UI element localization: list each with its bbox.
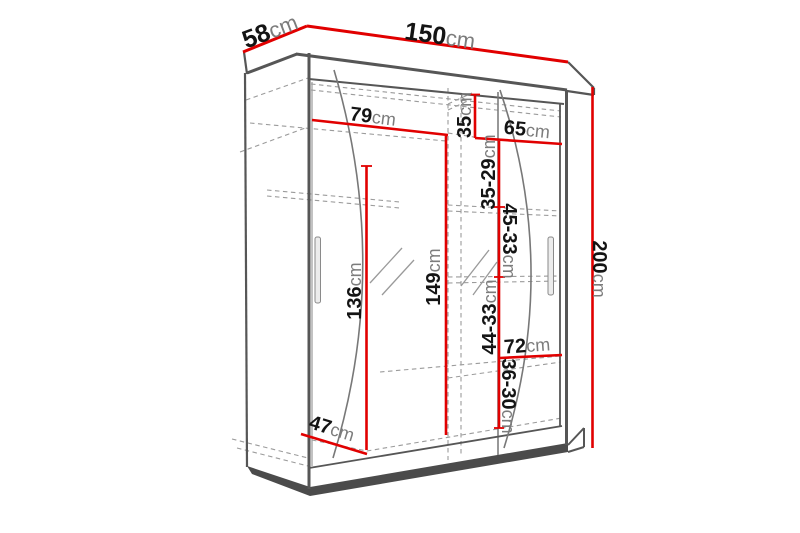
dimension-label-35: 35cm — [454, 92, 476, 138]
diagram-canvas: 58cm 150cm 200cm 79cm 65cm 35cm 35-29cm … — [0, 0, 800, 533]
dimension-label-45-33: 45-33cm — [498, 203, 520, 278]
dimension-label-44-33: 44-33cm — [479, 279, 501, 354]
dimension-label-35-29: 35-29cm — [478, 134, 500, 209]
dimension-label-47: 47cm — [306, 412, 357, 447]
carcass-outline — [244, 52, 594, 489]
dimension-label-36-30: 36-30cm — [497, 358, 519, 433]
wardrobe-dimension-diagram: 58cm 150cm 200cm 79cm 65cm 35cm 35-29cm … — [0, 0, 800, 533]
dimension-label-72: 72cm — [503, 333, 551, 358]
dimension-label-width-150: 150cm — [403, 17, 477, 55]
right-door-handle — [548, 237, 554, 295]
dimension-label-136: 136cm — [344, 262, 366, 319]
dimension-label-depth-58: 58cm — [238, 8, 301, 55]
dimension-label-149: 149cm — [423, 248, 445, 305]
dimension-label-79: 79cm — [349, 103, 398, 130]
dimension-label-height-200: 200cm — [588, 240, 610, 297]
left-door-handle — [315, 237, 321, 303]
